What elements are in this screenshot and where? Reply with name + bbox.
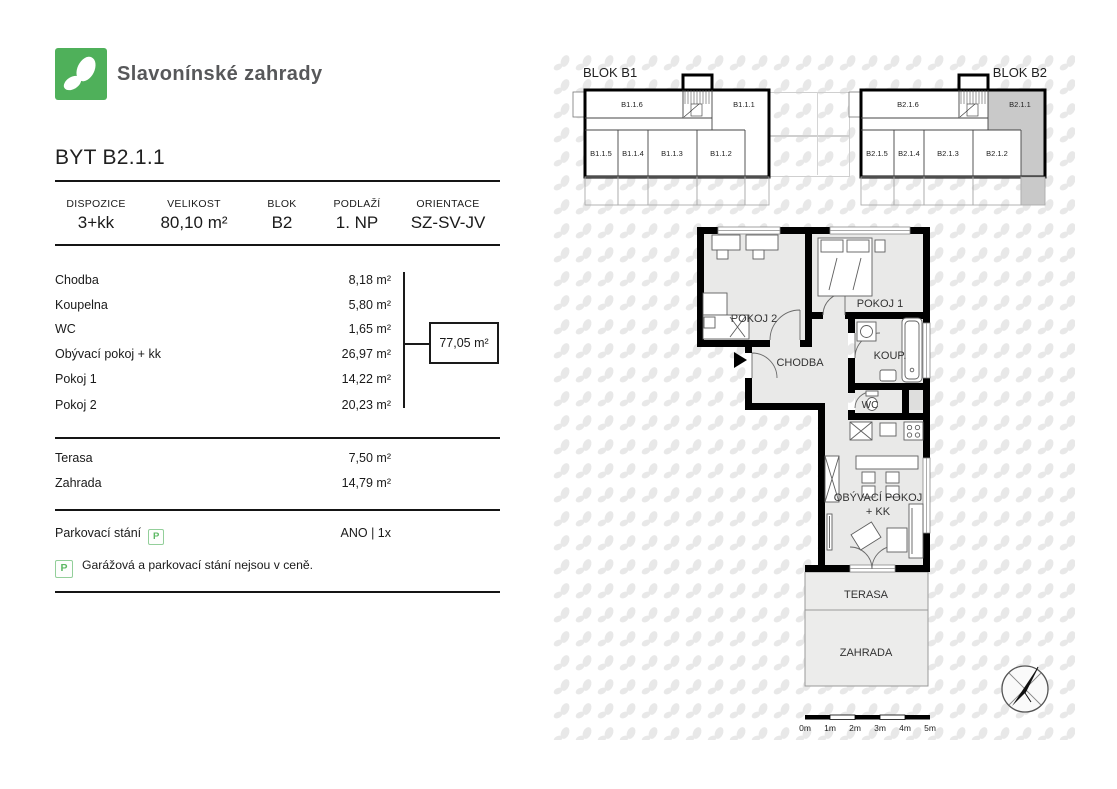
scale-label: 0m — [799, 723, 811, 733]
note-icon-wrap: P — [55, 556, 73, 578]
unit-label: B1.1.1 — [733, 100, 755, 109]
room-row-label: WC — [55, 322, 76, 336]
floorplan-sheet: Slavonínské zahrady BYT B2.1.1 DISPOZICE… — [0, 0, 1117, 789]
unit-label: B1.1.6 — [621, 100, 643, 109]
room-row-area: 1,65 m² — [296, 322, 391, 336]
parking-label: Parkovací stáníP — [55, 526, 164, 545]
block-entry-nub — [573, 92, 585, 117]
unit-label: B1.1.4 — [622, 149, 644, 158]
scale-label: 2m — [849, 723, 861, 733]
parking-value: ANO | 1x — [296, 526, 391, 540]
outdoor-row-area: 14,79 m² — [296, 476, 391, 490]
room-row-label: Pokoj 1 — [55, 372, 97, 386]
unit-label: B2.1.4 — [898, 149, 920, 158]
garden-strips — [585, 177, 769, 205]
highlighted-garden — [1021, 177, 1045, 205]
block-b1-title: BLOK B1 — [583, 65, 637, 80]
unit-label: B2.1.5 — [866, 149, 888, 158]
page-title: BYT B2.1.1 — [55, 146, 165, 170]
divider — [55, 591, 500, 593]
unit-label: B2.1.6 — [897, 100, 919, 109]
scale-label: 3m — [874, 723, 886, 733]
parking-icon: P — [148, 529, 164, 545]
unit-label: B2.1.2 — [986, 149, 1008, 158]
block-entry-nub — [849, 92, 861, 117]
brand-name: Slavonínské zahrady — [117, 63, 322, 86]
plan-label-pokoj1: POKOJ 1 — [857, 298, 903, 310]
unit-label: B1.1.5 — [590, 149, 612, 158]
scale-label: 1m — [824, 723, 836, 733]
site-outline-line — [817, 92, 818, 175]
entrance-arrow-icon — [734, 352, 747, 368]
room-row-area: 20,23 m² — [296, 398, 391, 412]
plan-label-pokoj2: POKOJ 2 — [731, 313, 777, 325]
interior-total-value: 77,05 m² — [439, 336, 488, 350]
room-row-label: Koupelna — [55, 298, 108, 312]
room-row-area: 26,97 m² — [296, 347, 391, 361]
parking-icon: P — [55, 560, 73, 578]
room-shaft — [909, 390, 923, 413]
plan-label-obyvaci-2: + KK — [866, 506, 891, 518]
room-row-label: Pokoj 2 — [55, 398, 97, 412]
divider — [55, 509, 500, 511]
parking-label-text: Parkovací stání — [55, 526, 141, 540]
unit-label: B2.1.3 — [937, 149, 959, 158]
brand-logo — [55, 48, 107, 100]
plan-label-terasa: TERASA — [844, 589, 889, 601]
block-b1-diagram: BLOK B1 B1.1.6 B1.1.1 B1.1.5 B1.1.4 B1.1… — [572, 60, 812, 210]
note-text: Garážová a parkovací stání nejsou v ceně… — [82, 558, 313, 572]
plan-label-zahrada: ZAHRADA — [840, 647, 893, 659]
plan-label-koupelna: KOUP. — [874, 350, 907, 362]
block-b2-title: BLOK B2 — [993, 65, 1047, 80]
room-row-label: Obývací pokoj + kk — [55, 347, 161, 361]
block-b2-diagram: BLOK B2 B2.1.6 B2.1.1 B2.1.5 B2.1.4 B2.1… — [848, 60, 1088, 210]
room-row-area: 8,18 m² — [296, 273, 391, 287]
scale-label: 4m — [899, 723, 911, 733]
room-row-label: Chodba — [55, 273, 99, 287]
summary-label: ORIENTACE — [390, 198, 506, 210]
divider — [55, 244, 500, 246]
unit-label: B1.1.2 — [710, 149, 732, 158]
room-row-area: 5,80 m² — [296, 298, 391, 312]
room-row-area: 14,22 m² — [296, 372, 391, 386]
plan-label-chodba: CHODBA — [776, 357, 824, 369]
plan-label-wc: WC — [862, 400, 879, 411]
scale-bar: 0m 1m 2m 3m 4m 5m — [799, 715, 936, 733]
scale-label: 5m — [924, 723, 936, 733]
floor-plan: POKOJ 2 POKOJ 1 CHODBA KOUP. WC OBÝVACÍ … — [690, 218, 940, 738]
interior-total-box: 77,05 m² — [429, 322, 499, 364]
unit-label: B1.1.3 — [661, 149, 683, 158]
outdoor-row-label: Terasa — [55, 451, 93, 465]
unit-label-highlighted: B2.1.1 — [1009, 100, 1031, 109]
stair-bump — [959, 75, 988, 90]
stair-bump — [683, 75, 712, 90]
garden-strips — [861, 177, 1045, 205]
divider — [55, 437, 500, 439]
plan-label-obyvaci-1: OBÝVACÍ POKOJ — [834, 491, 922, 504]
summary-col-orientace: ORIENTACE SZ-SV-JV — [390, 198, 506, 233]
outdoor-row-label: Zahrada — [55, 476, 102, 490]
outdoor-row-area: 7,50 m² — [296, 451, 391, 465]
total-area-bracket — [403, 272, 405, 408]
divider — [55, 180, 500, 182]
summary-value: SZ-SV-JV — [390, 213, 506, 233]
compass-icon — [998, 660, 1054, 720]
total-area-bracket-tick — [405, 343, 429, 345]
